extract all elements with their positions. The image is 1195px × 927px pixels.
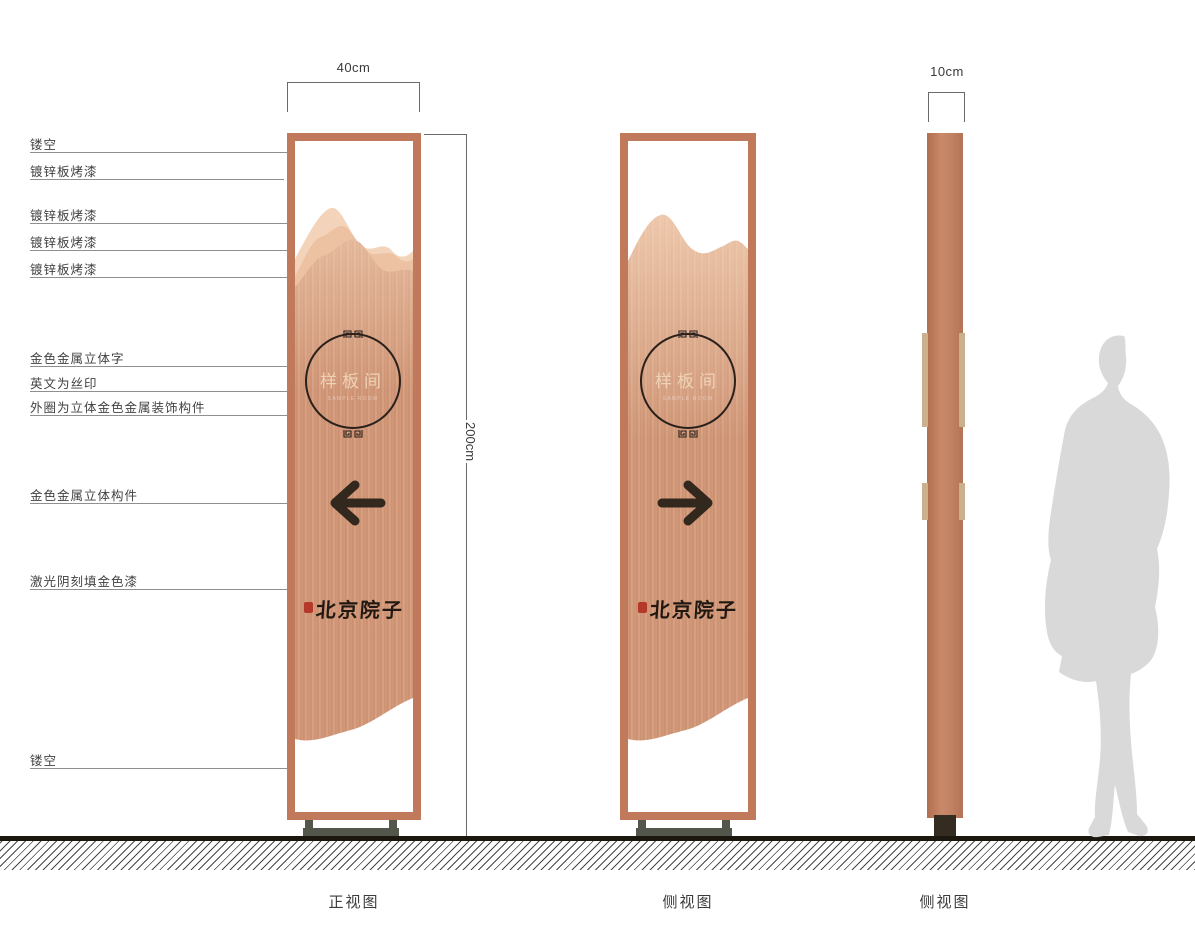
callout-line <box>30 391 330 392</box>
callout-gold-metal-3d-text: 金色金属立体字 <box>30 348 125 367</box>
metal-tab <box>959 483 965 520</box>
callout-galvanized-3: 镀锌板烤漆 <box>30 232 98 251</box>
metal-tab <box>959 333 965 427</box>
brand-calligraphy: 北京院子 <box>649 594 739 623</box>
view-label-side-1: 侧视图 <box>620 891 756 912</box>
brand-signature: 北京院子 <box>628 594 748 623</box>
room-name-text: 样板间 <box>655 372 721 391</box>
side-thickness-dimension: 10cm <box>910 64 984 79</box>
signage-spec-sheet: 镂空 镀锌板烤漆 镀锌板烤漆 镀锌板烤漆 镀锌板烤漆 金色金属立体字 英文为丝印… <box>0 0 1195 927</box>
side-profile-base <box>934 815 956 838</box>
callout-galvanized-1: 镀锌板烤漆 <box>30 161 98 180</box>
callout-english-silkscreen: 英文为丝印 <box>30 373 98 392</box>
callout-line <box>30 152 306 153</box>
callout-line <box>30 277 292 278</box>
callout-galvanized-4: 镀锌板烤漆 <box>30 259 98 278</box>
side-view-artwork: 样板间 SAMPLE ROOM <box>628 141 748 812</box>
front-view-artwork: 样板间 SAMPLE ROOM <box>295 141 413 812</box>
metal-tab <box>922 333 928 427</box>
callout-hollow-bottom: 镂空 <box>30 750 57 769</box>
callout-line <box>30 250 292 251</box>
red-seal-icon <box>304 602 313 613</box>
brand-calligraphy: 北京院子 <box>315 594 405 623</box>
callout-outer-ring-ornament: 外圈为立体金色金属装饰构件 <box>30 397 206 416</box>
human-silhouette <box>1038 332 1178 839</box>
side-view-frame: 样板间 SAMPLE ROOM 北京院子 <box>620 133 756 820</box>
callout-gold-metal-3d-component: 金色金属立体构件 <box>30 485 138 504</box>
human-silhouette-shape <box>1045 335 1170 837</box>
front-width-dimension: 40cm <box>287 60 420 75</box>
room-name-english-text: SAMPLE ROOM <box>328 396 378 402</box>
thickness-bracket <box>928 92 965 122</box>
stand-bar <box>636 828 732 836</box>
room-name-english-text: SAMPLE ROOM <box>663 396 713 402</box>
height-dimension: 200cm <box>463 420 478 463</box>
callout-line <box>30 179 284 180</box>
width-bracket <box>287 82 420 112</box>
view-label-front: 正视图 <box>287 891 421 912</box>
callout-galvanized-2: 镀锌板烤漆 <box>30 205 98 224</box>
height-dimension-tick <box>424 134 467 135</box>
callout-line <box>30 415 316 416</box>
callout-hollow-top: 镂空 <box>30 134 57 153</box>
callout-line <box>30 366 330 367</box>
ground-hatch <box>0 841 1195 870</box>
brand-signature: 北京院子 <box>295 594 413 623</box>
front-view-frame: 样板间 SAMPLE ROOM 北京院子 <box>287 133 421 820</box>
view-label-side-2: 侧视图 <box>878 891 1012 912</box>
callout-line <box>30 768 302 769</box>
side-profile-bar <box>927 133 963 818</box>
panel-highlight <box>628 211 748 441</box>
red-seal-icon <box>638 602 647 613</box>
stand-bar <box>303 828 399 836</box>
metal-tab <box>922 483 928 520</box>
room-name-text: 样板间 <box>320 372 386 391</box>
height-dimension-line <box>466 134 467 837</box>
callout-laser-engraved-gold: 激光阴刻填金色漆 <box>30 571 138 590</box>
callout-line <box>30 223 322 224</box>
